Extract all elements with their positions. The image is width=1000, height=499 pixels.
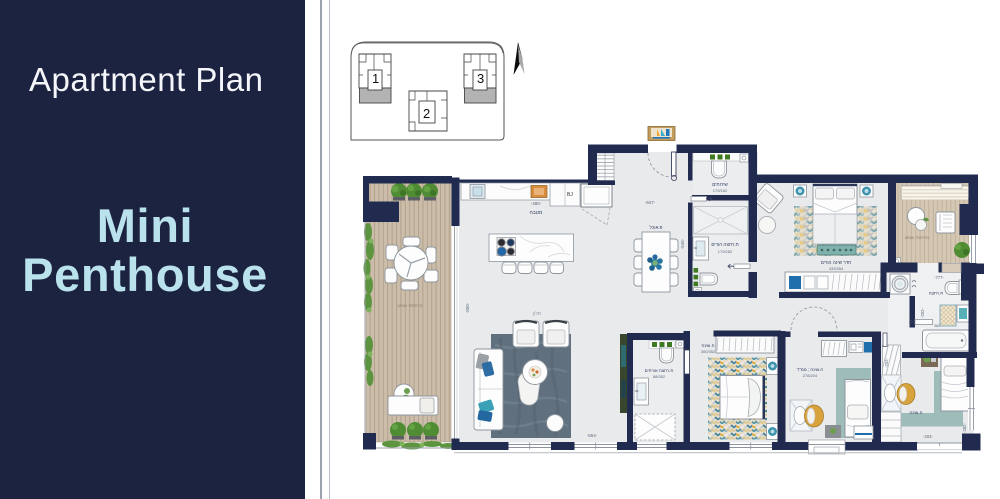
svg-text:ח.שינה: ח.שינה (910, 410, 923, 415)
svg-text:שירותים: שירותים (712, 182, 728, 187)
svg-text:-546-: -546- (680, 238, 685, 249)
svg-text:433/354: 433/354 (829, 266, 844, 271)
svg-text:ח.שינה: ח.שינה (702, 343, 715, 348)
svg-text:2: 2 (423, 106, 430, 121)
svg-text:-282-: -282- (962, 423, 967, 433)
svg-text:3: 3 (477, 71, 484, 86)
svg-text:סלון: סלון (533, 311, 541, 316)
svg-text:מרפסת שמש: מרפסת שמש (398, 303, 423, 308)
svg-text:300/352: 300/352 (701, 349, 716, 354)
svg-text:-480-: -480- (531, 201, 542, 206)
svg-text:179/162: 179/162 (713, 188, 728, 193)
svg-text:362: 362 (934, 324, 940, 328)
svg-text:-554-: -554- (587, 433, 598, 438)
svg-text:179/282: 179/282 (718, 249, 733, 254)
svg-text:חדר שינה הורים: חדר שינה הורים (821, 260, 852, 265)
svg-text:-947-: -947- (645, 200, 656, 205)
svg-text:BJ: BJ (567, 192, 573, 198)
svg-text:-252-: -252- (884, 358, 889, 368)
svg-text:-203-: -203- (923, 434, 933, 439)
svg-text:ת.רחצה: ת.רחצה (929, 291, 944, 296)
svg-text:88/352: 88/352 (653, 374, 666, 379)
svg-text:-850-: -850- (465, 302, 470, 313)
svg-text:278/204: 278/204 (803, 373, 818, 378)
svg-text:מרפסת שמש: מרפסת שמש (905, 235, 929, 240)
svg-text:ת.רחצה אורחים: ת.רחצה אורחים (645, 368, 674, 373)
svg-text:מטבח: מטבח (530, 210, 544, 216)
svg-text:1: 1 (372, 71, 379, 86)
svg-text:פ.אוכל: פ.אוכל (650, 225, 663, 230)
svg-text:ת.רחצה הורים: ת.רחצה הורים (711, 242, 738, 247)
svg-text:-252-: -252- (920, 308, 925, 318)
svg-text:-777-: -777- (934, 275, 944, 280)
svg-text:ח.שינה ; ממ"ד: ח.שינה ; ממ"ד (797, 367, 824, 372)
